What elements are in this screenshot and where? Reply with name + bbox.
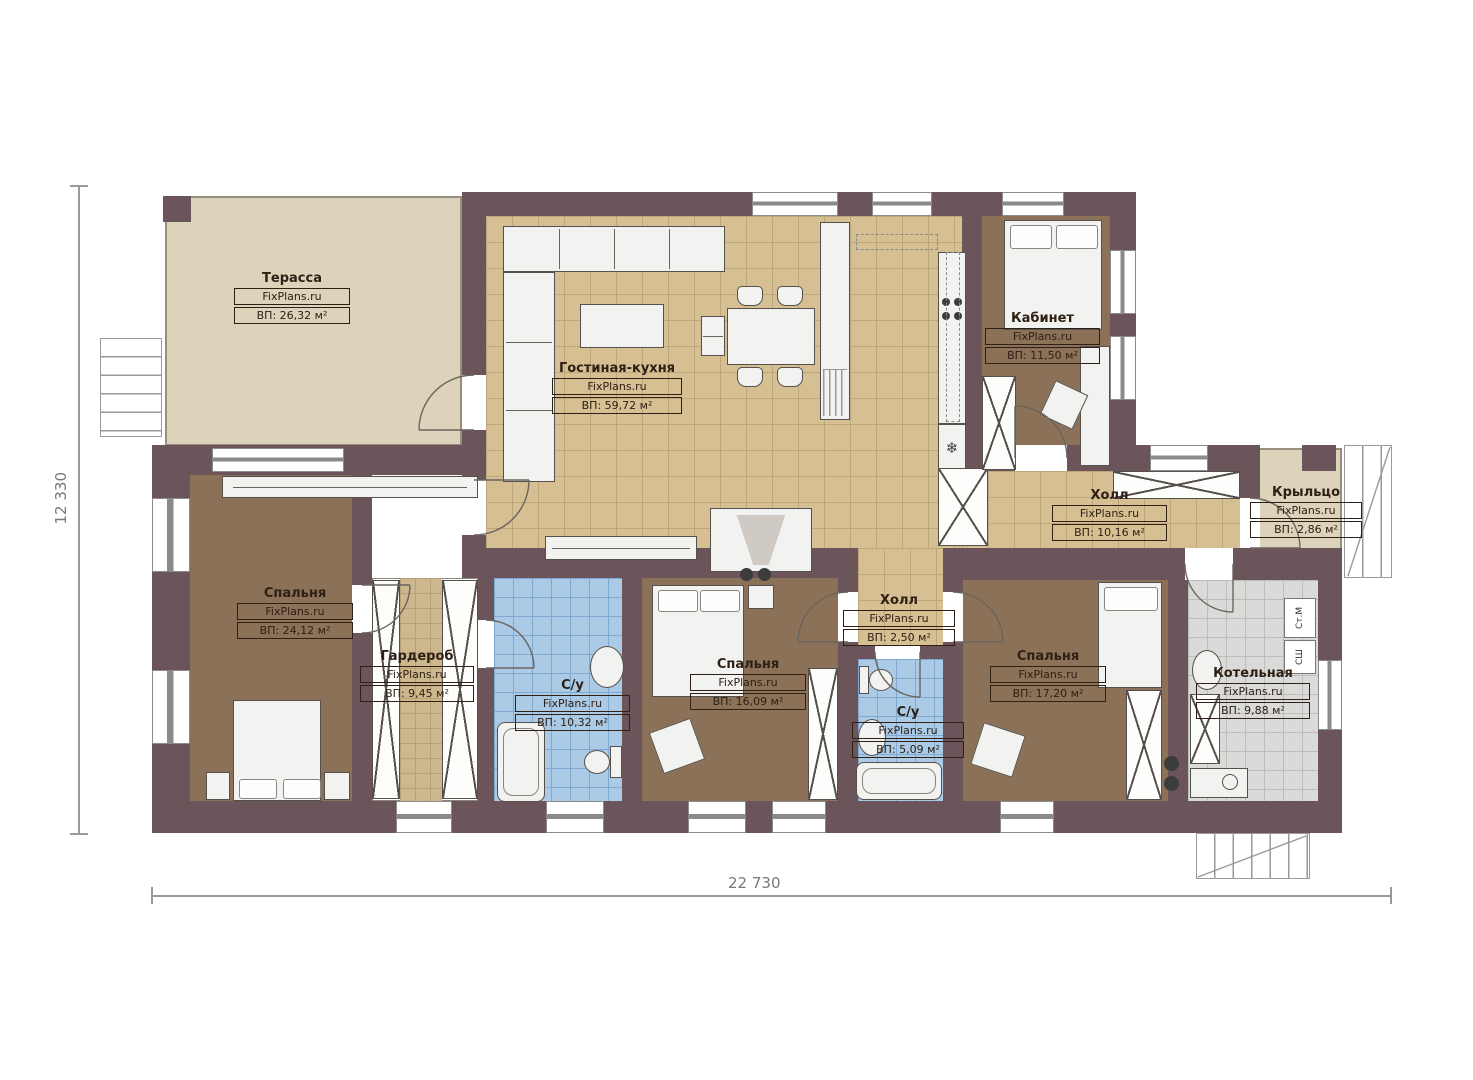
watermark: FixPlans.ru: [1052, 505, 1167, 522]
room-name: Гостиная-кухня: [559, 362, 675, 376]
watermark: FixPlans.ru: [1196, 683, 1310, 700]
room-area: ВП: 5,09 м²: [852, 741, 964, 758]
watermark: FixPlans.ru: [690, 674, 806, 691]
room-name: Холл: [1091, 489, 1129, 503]
room-label-bathroom-1: С/у FixPlans.ru ВП: 10,32 м²: [515, 679, 630, 731]
room-label-office: Кабинет FixPlans.ru ВП: 11,50 м²: [985, 312, 1100, 364]
room-label-bathroom-2: С/у FixPlans.ru ВП: 5,09 м²: [852, 706, 964, 758]
washer-label: Ст.М: [1284, 598, 1316, 638]
watermark: FixPlans.ru: [237, 603, 353, 620]
room-name: Терасса: [262, 272, 322, 286]
room-name: Котельная: [1213, 667, 1293, 681]
floor-plan: ❄ Ст.М СШ: [0, 0, 1473, 1080]
room-name: Спальня: [717, 658, 779, 672]
room-label-bedroom-left: Спальня FixPlans.ru ВП: 24,12 м²: [237, 587, 353, 639]
room-label-porch: Крыльцо FixPlans.ru ВП: 2,86 м²: [1250, 486, 1362, 538]
room-area: ВП: 11,50 м²: [985, 347, 1100, 364]
room-area: ВП: 59,72 м²: [552, 397, 682, 414]
room-area: ВП: 16,09 м²: [690, 693, 806, 710]
room-label-bedroom-mid: Спальня FixPlans.ru ВП: 16,09 м²: [690, 658, 806, 710]
room-name: Спальня: [264, 587, 326, 601]
room-label-terrace: Терасса FixPlans.ru ВП: 26,32 м²: [234, 272, 350, 324]
door-swings-overlay: [0, 0, 1473, 1080]
room-label-hall: Холл FixPlans.ru ВП: 10,16 м²: [1052, 489, 1167, 541]
room-area: ВП: 24,12 м²: [237, 622, 353, 639]
room-name: Спальня: [1017, 650, 1079, 664]
watermark: FixPlans.ru: [515, 695, 630, 712]
room-name: С/у: [897, 706, 920, 720]
room-label-wardrobe: Гардероб FixPlans.ru ВП: 9,45 м²: [360, 650, 474, 702]
room-name: С/у: [561, 679, 584, 693]
room-area: ВП: 17,20 м²: [990, 685, 1106, 702]
room-name: Крыльцо: [1272, 486, 1340, 500]
room-area: ВП: 9,45 м²: [360, 685, 474, 702]
room-area: ВП: 9,88 м²: [1196, 702, 1310, 719]
room-area: ВП: 10,32 м²: [515, 714, 630, 731]
watermark: FixPlans.ru: [360, 666, 474, 683]
room-label-hall-2: Холл FixPlans.ru ВП: 2,50 м²: [843, 594, 955, 646]
watermark: FixPlans.ru: [234, 288, 350, 305]
room-label-bedroom-right: Спальня FixPlans.ru ВП: 17,20 м²: [990, 650, 1106, 702]
room-label-boiler: Котельная FixPlans.ru ВП: 9,88 м²: [1196, 667, 1310, 719]
room-area: ВП: 2,86 м²: [1250, 521, 1362, 538]
watermark: FixPlans.ru: [552, 378, 682, 395]
room-area: ВП: 2,50 м²: [843, 629, 955, 646]
watermark: FixPlans.ru: [1250, 502, 1362, 519]
room-area: ВП: 10,16 м²: [1052, 524, 1167, 541]
room-area: ВП: 26,32 м²: [234, 307, 350, 324]
watermark: FixPlans.ru: [985, 328, 1100, 345]
watermark: FixPlans.ru: [852, 722, 964, 739]
watermark: FixPlans.ru: [990, 666, 1106, 683]
room-name: Холл: [880, 594, 918, 608]
room-name: Гардероб: [381, 650, 454, 664]
watermark: FixPlans.ru: [843, 610, 955, 627]
room-name: Кабинет: [1011, 312, 1074, 326]
room-label-living-kitchen: Гостиная-кухня FixPlans.ru ВП: 59,72 м²: [552, 362, 682, 414]
